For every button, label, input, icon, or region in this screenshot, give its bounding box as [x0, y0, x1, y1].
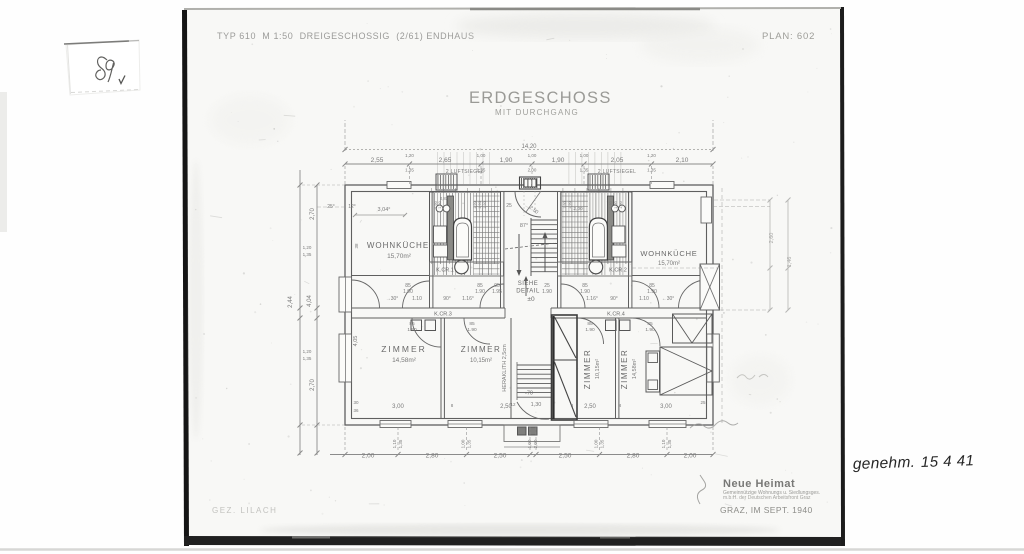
svg-text:14,58m²: 14,58m² — [392, 357, 417, 364]
svg-text:1,20: 1,20 — [303, 349, 312, 354]
svg-text:4,05: 4,05 — [353, 336, 359, 347]
svg-text:85: 85 — [647, 321, 653, 327]
svg-text:±0: ±0 — [527, 296, 535, 303]
svg-text:2,50: 2,50 — [559, 453, 572, 460]
svg-text:2,00: 2,00 — [573, 206, 583, 212]
svg-text:1,35: 1,35 — [667, 439, 672, 448]
svg-text:1,00: 1,00 — [594, 439, 599, 448]
svg-text:1,46: 1,46 — [787, 257, 793, 268]
svg-text:15,70m²: 15,70m² — [658, 261, 680, 267]
svg-text:1,35: 1,35 — [600, 439, 605, 448]
svg-text:ZIMMER: ZIMMER — [461, 345, 502, 354]
svg-text:1,10: 1,10 — [661, 439, 666, 448]
svg-text:-70: -70 — [525, 391, 533, 397]
svg-text:3,00: 3,00 — [660, 404, 672, 410]
svg-text:2,65: 2,65 — [439, 157, 452, 164]
svg-text:1.16°: 1.16° — [586, 296, 598, 302]
svg-text:10,15m²: 10,15m² — [595, 359, 601, 379]
svg-text:1,30: 1,30 — [531, 402, 542, 408]
svg-text:1,90: 1,90 — [563, 201, 567, 208]
svg-text:85: 85 — [587, 321, 593, 327]
svg-text:1,35: 1,35 — [303, 252, 312, 257]
svg-text:2,60: 2,60 — [769, 233, 775, 244]
svg-text:1,00: 1,00 — [580, 153, 589, 158]
svg-text:PLAN: 602: PLAN: 602 — [762, 31, 815, 42]
svg-text:1.90: 1.90 — [475, 289, 485, 295]
svg-text:MIT DURCHGANG: MIT DURCHGANG — [495, 108, 579, 117]
svg-text:1,90: 1,90 — [483, 201, 487, 208]
svg-text:HERAKLITH 2,5cm: HERAKLITH 2,5cm — [502, 344, 508, 392]
svg-text:1,00: 1,00 — [528, 153, 537, 158]
svg-text:1.10: 1.10 — [639, 296, 649, 302]
svg-text:2,44: 2,44 — [288, 296, 294, 308]
svg-text:2,55: 2,55 — [371, 157, 384, 164]
svg-text:15 4 41: 15 4 41 — [921, 452, 975, 471]
svg-text:1.90: 1.90 — [407, 327, 417, 333]
svg-text:15,70m²: 15,70m² — [387, 253, 412, 260]
svg-text:SIEHE: SIEHE — [518, 281, 539, 287]
svg-text:1,00: 1,00 — [527, 439, 532, 448]
svg-text:4,04: 4,04 — [307, 295, 313, 307]
svg-text:2,10: 2,10 — [676, 157, 689, 164]
svg-text:25: 25 — [700, 400, 706, 405]
svg-text:←30°: ←30° — [662, 296, 675, 302]
svg-text:1,20: 1,20 — [303, 245, 312, 250]
svg-text:1.90: 1.90 — [645, 327, 655, 333]
svg-text:ZIMMER: ZIMMER — [620, 349, 629, 390]
svg-text:1,35: 1,35 — [467, 439, 472, 448]
svg-text:3,00: 3,00 — [392, 404, 404, 410]
svg-text:85: 85 — [409, 321, 415, 327]
svg-text:ZIMMER: ZIMMER — [381, 344, 427, 354]
svg-text:1,90: 1,90 — [438, 201, 442, 208]
svg-text:1.90: 1.90 — [403, 289, 413, 295]
svg-text:2,50: 2,50 — [584, 404, 596, 410]
svg-text:DETAIL: DETAIL — [516, 289, 540, 295]
svg-text:1.10: 1.10 — [412, 296, 422, 302]
svg-text:WOHNKÜCHE: WOHNKÜCHE — [640, 249, 697, 258]
svg-text:2,00: 2,00 — [684, 453, 697, 460]
svg-text:ERDGESCHOSS: ERDGESCHOSS — [469, 89, 612, 107]
svg-text:1,90: 1,90 — [478, 201, 482, 208]
svg-text:2,80: 2,80 — [426, 453, 439, 460]
svg-text:1,35: 1,35 — [303, 356, 312, 361]
svg-text:1.16°: 1.16° — [462, 296, 474, 302]
svg-text:1,00: 1,00 — [477, 153, 486, 158]
svg-text:2,00: 2,00 — [533, 439, 538, 448]
svg-text:2,05: 2,05 — [611, 157, 624, 164]
svg-text:1.90: 1.90 — [585, 327, 595, 333]
svg-text:1,10: 1,10 — [392, 439, 397, 448]
svg-text:2,50: 2,50 — [494, 453, 507, 460]
svg-text:GRAZ, IM SEPT. 1940: GRAZ, IM SEPT. 1940 — [720, 505, 813, 515]
svg-text:1,00: 1,00 — [461, 439, 466, 448]
svg-text:90°: 90° — [610, 296, 618, 302]
svg-text:1.90: 1.90 — [647, 289, 657, 295]
svg-text:3,04°: 3,04° — [378, 207, 391, 213]
svg-text:1,20: 1,20 — [405, 153, 414, 158]
svg-text:K.CR.1: K.CR.1 — [436, 268, 454, 274]
svg-text:K.CR.4: K.CR.4 — [607, 312, 625, 318]
svg-text:→30°: →30° — [386, 296, 399, 302]
svg-text:Neue Heimat: Neue Heimat — [723, 478, 795, 490]
svg-text:1,20: 1,20 — [647, 153, 656, 158]
svg-text:→: → — [618, 208, 623, 214]
svg-text:2,70: 2,70 — [310, 379, 316, 391]
svg-text:1,90: 1,90 — [500, 157, 513, 164]
svg-text:90°: 90° — [443, 296, 451, 302]
svg-text:2,00: 2,00 — [362, 453, 375, 460]
svg-text:1,90: 1,90 — [473, 201, 477, 208]
svg-text:GEZ. LILACH: GEZ. LILACH — [212, 506, 277, 515]
svg-text:2,80: 2,80 — [627, 453, 640, 460]
svg-text:m.b.H. der Deutschen Arbeitsfr: m.b.H. der Deutschen Arbeitsfront Graz — [723, 495, 811, 501]
svg-text:1,35: 1,35 — [398, 439, 403, 448]
svg-text:ZIMMER: ZIMMER — [583, 349, 592, 390]
svg-text:genehm.: genehm. — [853, 454, 916, 473]
svg-text:12°: 12° — [348, 204, 356, 210]
svg-text:2 LUFTSIEGEL: 2 LUFTSIEGEL — [598, 169, 636, 175]
svg-text:2,70: 2,70 — [310, 208, 316, 220]
svg-text:1,90: 1,90 — [609, 201, 613, 208]
svg-text:30: 30 — [353, 400, 359, 405]
svg-text:1.90: 1.90 — [580, 289, 590, 295]
svg-text:K.CR.2: K.CR.2 — [609, 268, 627, 274]
svg-text:K.CR.3: K.CR.3 — [434, 312, 452, 318]
svg-text:1.95: 1.95 — [492, 289, 502, 295]
svg-text:1.90: 1.90 — [542, 289, 552, 295]
svg-text:1,90: 1,90 — [568, 201, 572, 208]
svg-text:0,82: 0,82 — [440, 196, 449, 201]
svg-text:TYP 610 M 1:50 DREIGESCHOSSI: TYP 610 M 1:50 DREIGESCHOSSIG (2/61) END… — [217, 31, 475, 41]
svg-text:WOHNKÜCHE: WOHNKÜCHE — [367, 241, 429, 250]
svg-text:36: 36 — [353, 408, 359, 413]
svg-text:2,50: 2,50 — [500, 404, 512, 410]
svg-text:1,90: 1,90 — [552, 157, 565, 164]
svg-text:38: 38 — [354, 243, 359, 249]
svg-text:14,58m²: 14,58m² — [632, 359, 638, 379]
svg-text:87°: 87° — [520, 223, 528, 229]
svg-text:10,15m²: 10,15m² — [470, 358, 492, 364]
svg-text:14,20: 14,20 — [521, 144, 537, 150]
svg-text:1.90: 1.90 — [467, 327, 477, 333]
svg-text:25: 25 — [506, 203, 512, 209]
svg-text:85: 85 — [469, 321, 475, 327]
